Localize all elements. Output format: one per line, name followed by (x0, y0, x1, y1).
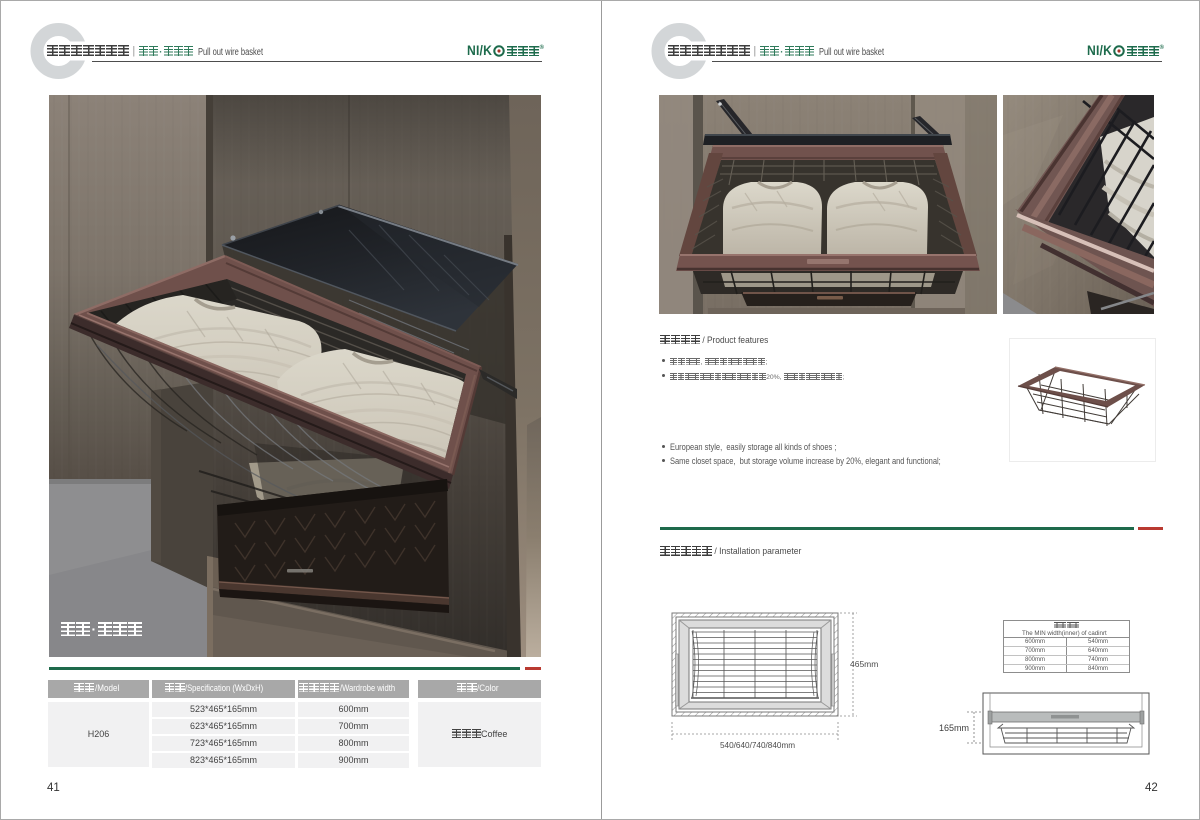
svg-text:465mm: 465mm (850, 659, 878, 669)
svg-text:165mm: 165mm (939, 723, 969, 733)
svg-text:540/640/740/840mm: 540/640/740/840mm (720, 741, 795, 750)
